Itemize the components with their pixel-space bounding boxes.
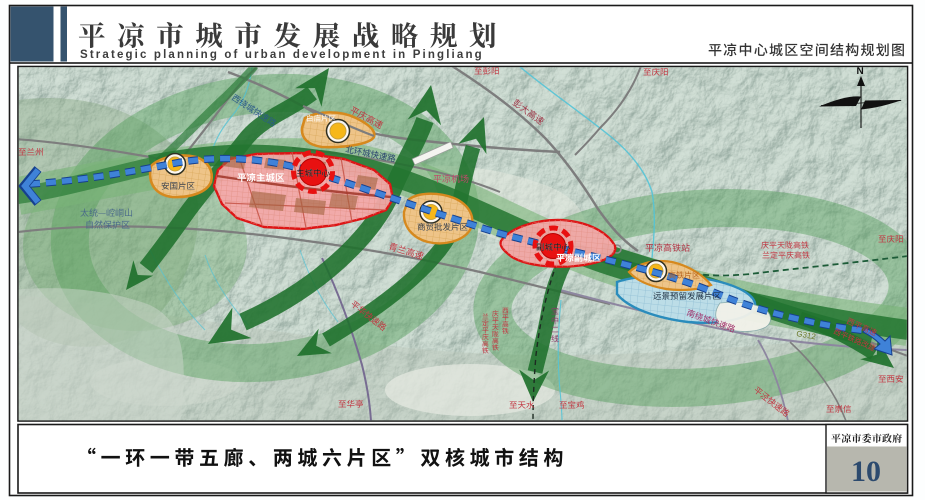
svg-text:N: N: [857, 66, 864, 77]
svg-text:Strategic planning of urban de: Strategic planning of urban development …: [80, 49, 484, 61]
svg-text:10: 10: [851, 455, 881, 488]
